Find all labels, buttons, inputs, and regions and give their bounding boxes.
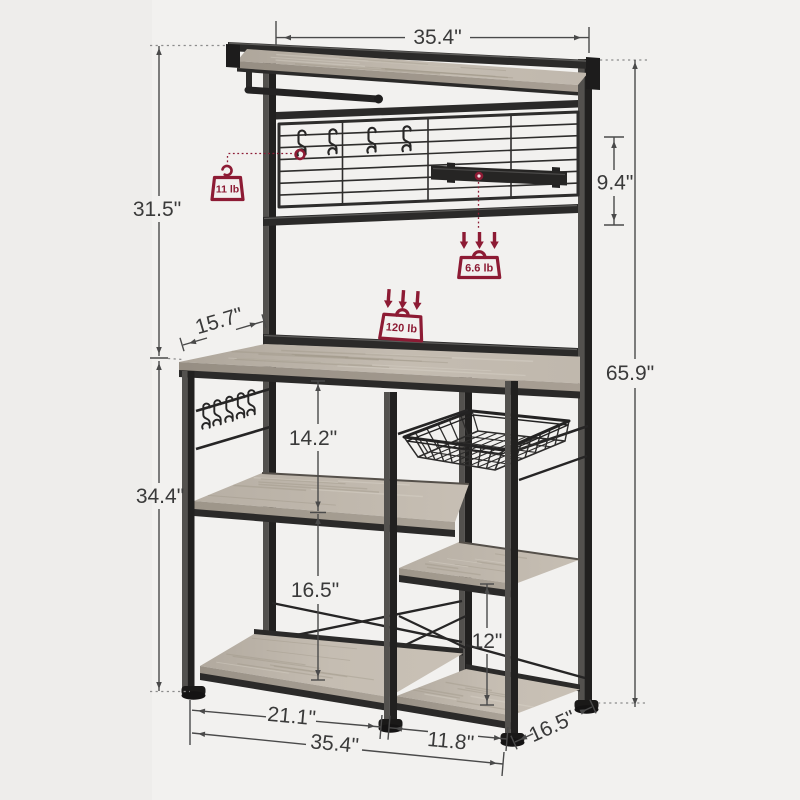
svg-text:16.5": 16.5" (291, 579, 339, 602)
svg-text:21.1": 21.1" (266, 703, 316, 730)
svg-text:120 lb: 120 lb (385, 321, 417, 335)
svg-text:11 lb: 11 lb (216, 183, 239, 195)
svg-text:31.5": 31.5" (133, 198, 181, 221)
svg-text:35.4": 35.4" (413, 26, 461, 49)
svg-text:14.2": 14.2" (289, 427, 337, 450)
svg-text:9.4": 9.4" (597, 172, 634, 195)
svg-text:34.4": 34.4" (136, 485, 184, 508)
svg-text:35.4": 35.4" (309, 730, 359, 757)
svg-text:11.8": 11.8" (426, 728, 475, 755)
svg-text:6.6 lb: 6.6 lb (465, 263, 493, 275)
svg-text:65.9": 65.9" (606, 362, 654, 385)
svg-text:12": 12" (472, 630, 503, 653)
